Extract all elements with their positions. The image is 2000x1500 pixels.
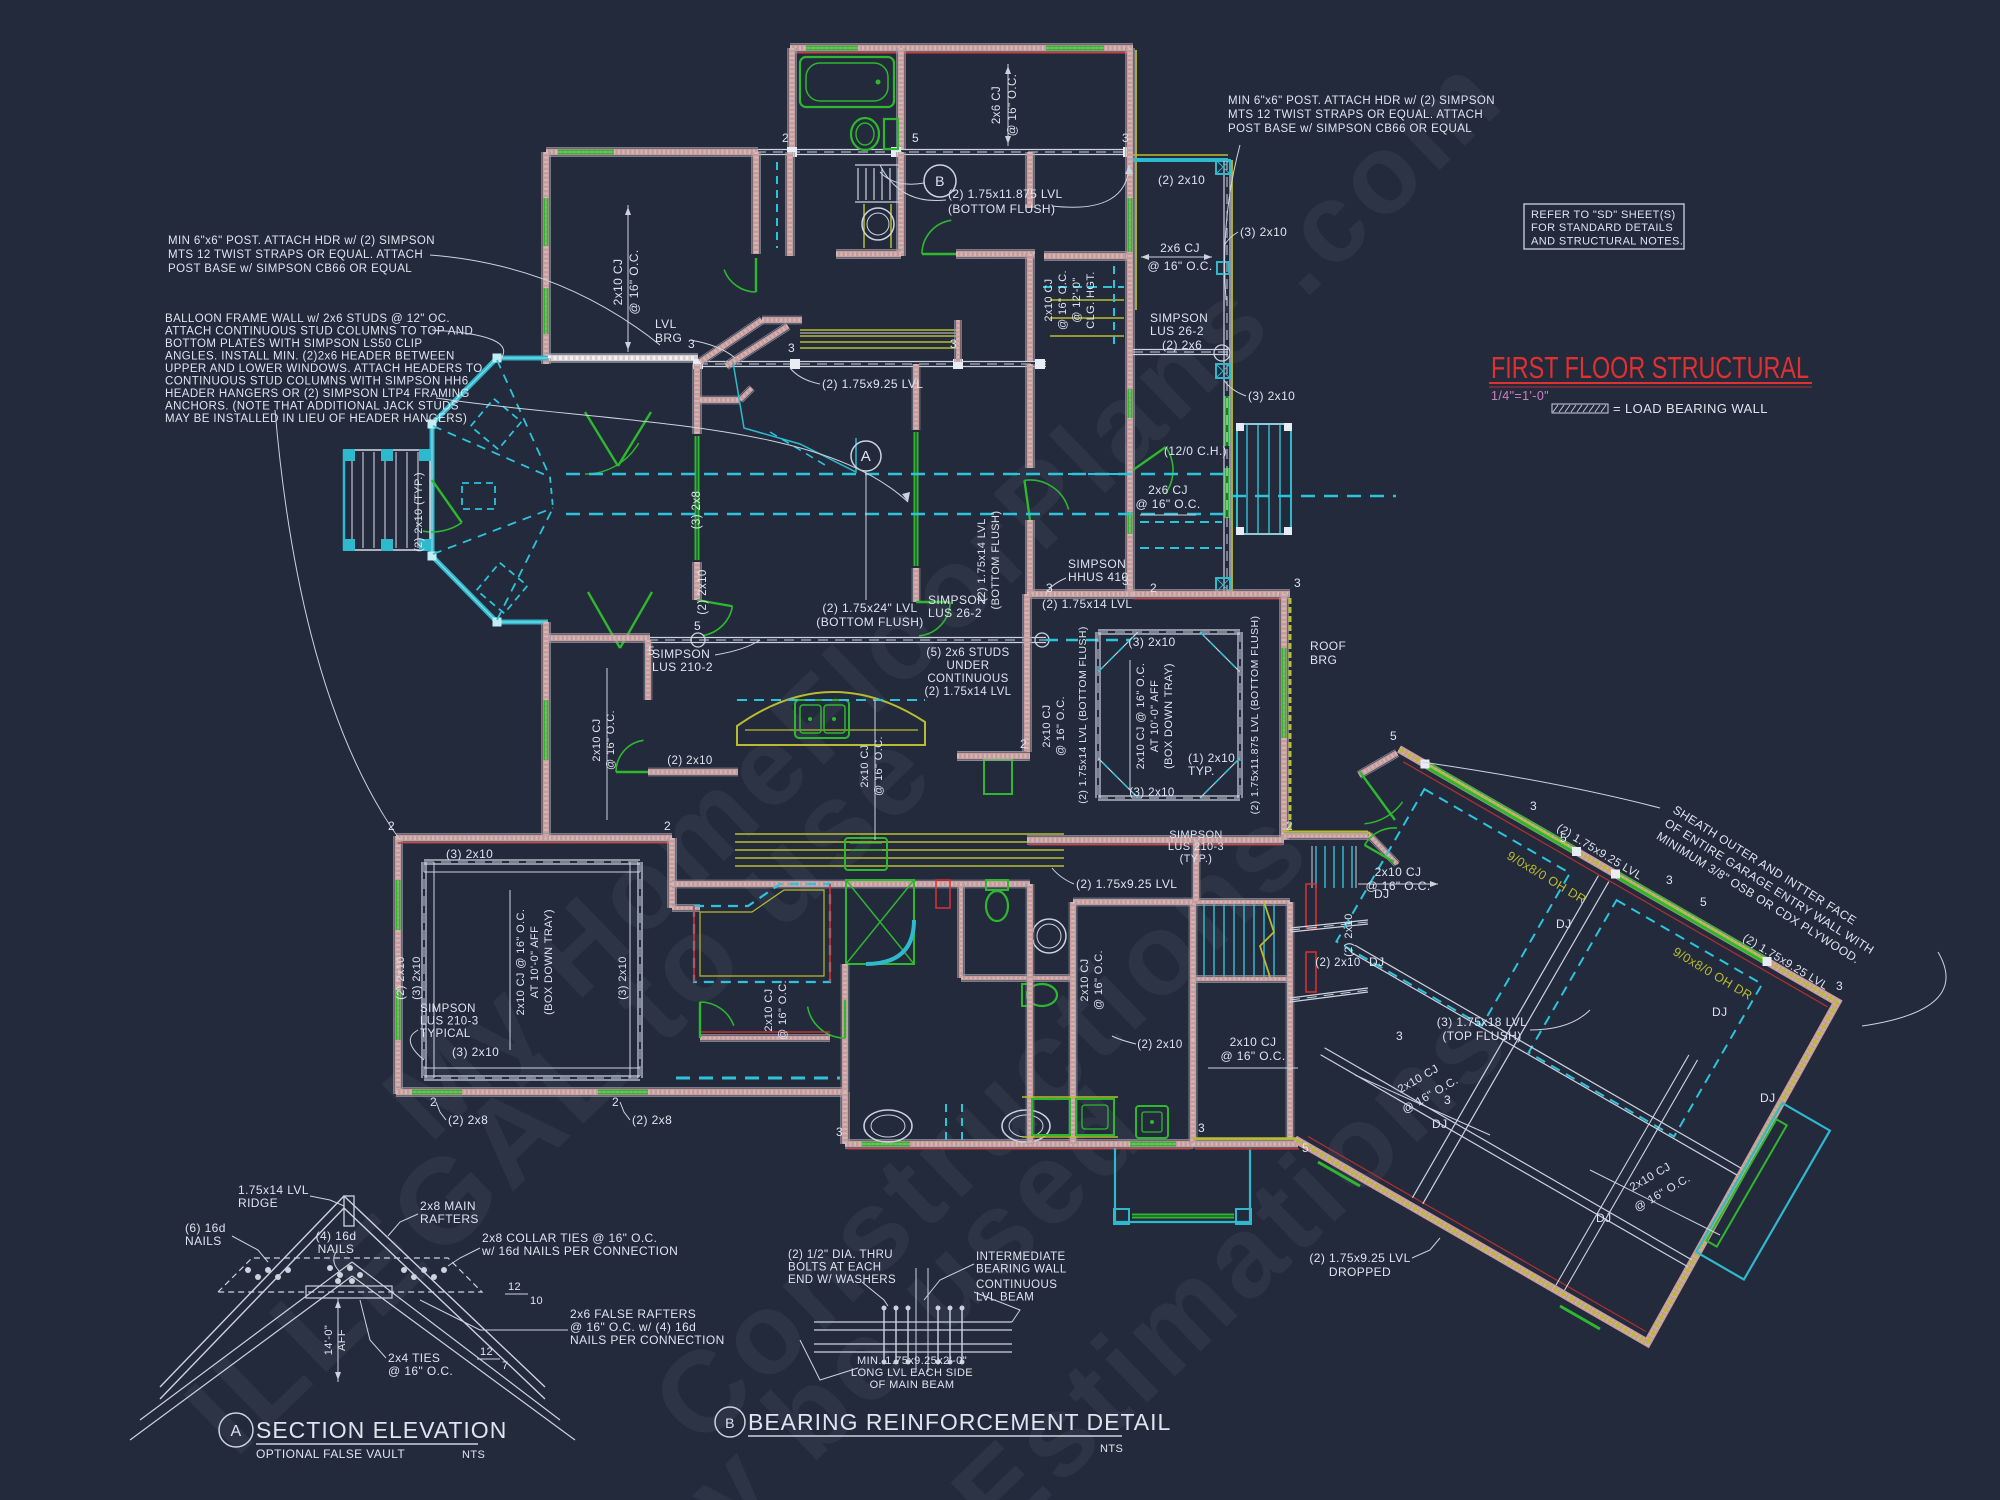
svg-text:DJ: DJ [1374,887,1389,901]
svg-text:BALLOON FRAME WALL w/ 2x6 STUD: BALLOON FRAME WALL w/ 2x6 STUDS @ 12" OC… [165,313,450,325]
svg-text:5: 5 [912,131,919,145]
svg-text:SIMPSON: SIMPSON [1169,829,1223,841]
svg-text:(2) 1/2" DIA. THRU: (2) 1/2" DIA. THRU [788,1249,893,1261]
svg-text:UNDER: UNDER [947,660,990,672]
svg-text:DROPPED: DROPPED [1329,1265,1391,1279]
svg-text:SIMPSON: SIMPSON [420,1003,476,1015]
svg-text:(2) 2x8: (2) 2x8 [632,1113,672,1127]
svg-text:@ 16" O.C.: @ 16" O.C. [627,249,641,314]
svg-text:@ 16" O.C.: @ 16" O.C. [1093,950,1105,1010]
svg-text:B: B [725,1415,735,1431]
svg-text:CONTINUOUS STUD COLUMNS WITH S: CONTINUOUS STUD COLUMNS WITH SIMPSON HH6 [165,376,469,388]
svg-text:CONTINUOUS: CONTINUOUS [976,1279,1057,1291]
svg-text:OPTIONAL FALSE VAULT: OPTIONAL FALSE VAULT [256,1447,405,1461]
svg-text:SECTION ELEVATION: SECTION ELEVATION [256,1417,507,1443]
svg-text:2x10 CJ: 2x10 CJ [1043,278,1055,321]
svg-text:2: 2 [1150,581,1157,595]
svg-text:5: 5 [1560,831,1567,845]
svg-text:DJ: DJ [1760,1091,1775,1105]
svg-text:(2) 2x10: (2) 2x10 [395,956,407,1000]
svg-text:BEARING REINFORCEMENT DETAIL: BEARING REINFORCEMENT DETAIL [748,1409,1171,1435]
svg-text:END W/ WASHERS: END W/ WASHERS [788,1274,896,1286]
svg-text:5: 5 [694,619,701,633]
svg-text:2x4 TIES: 2x4 TIES [388,1351,440,1365]
svg-text:POST BASE w/ SIMPSON CB66 OR E: POST BASE w/ SIMPSON CB66 OR EQUAL [168,263,412,275]
svg-text:DJ: DJ [1432,1117,1447,1131]
svg-text:(3) 2x10: (3) 2x10 [411,956,423,1000]
svg-text:w/ 16d NAILS PER CONNECTION: w/ 16d NAILS PER CONNECTION [481,1244,678,1258]
svg-text:2x8 COLLAR TIES @ 16" O.C.: 2x8 COLLAR TIES @ 16" O.C. [482,1231,657,1245]
svg-text:BOTTOM PLATES WITH SIMPSON LS5: BOTTOM PLATES WITH SIMPSON LS50 CLIP [165,338,422,350]
svg-text:MTS 12 TWIST STRAPS OR EQUAL.: MTS 12 TWIST STRAPS OR EQUAL. ATTACH [168,249,423,261]
svg-text:2: 2 [782,131,789,145]
svg-text:TYP.: TYP. [1188,764,1215,778]
svg-text:CONTINUOUS: CONTINUOUS [927,673,1008,685]
svg-text:(BOTTOM FLUSH): (BOTTOM FLUSH) [948,202,1055,216]
svg-text:SIMPSON: SIMPSON [1068,557,1126,571]
svg-text:LUS 210-2: LUS 210-2 [652,660,713,674]
svg-text:NAILS: NAILS [185,1234,222,1248]
svg-text:DJ: DJ [1556,917,1571,931]
svg-text:3: 3 [836,1125,843,1139]
svg-text:A: A [230,1423,241,1440]
svg-text:(2) 1.75x9.25 LVL: (2) 1.75x9.25 LVL [822,377,923,391]
svg-text:MAY BE INSTALLED IN LIEU OF HE: MAY BE INSTALLED IN LIEU OF HEADER HANGE… [165,413,467,425]
svg-text:(BOTTOM FLUSH): (BOTTOM FLUSH) [990,511,1002,610]
svg-text:2x10 CJ: 2x10 CJ [1230,1035,1277,1049]
svg-text:3: 3 [950,337,957,351]
svg-text:LUS 26-2: LUS 26-2 [928,606,982,620]
svg-text:@ 16" O.C.: @ 16" O.C. [388,1364,453,1378]
svg-text:12: 12 [480,1346,493,1358]
svg-text:2x10 CJ: 2x10 CJ [591,718,603,761]
svg-text:2x10 CJ @ 16" O.C.: 2x10 CJ @ 16" O.C. [1135,663,1147,770]
svg-text:DJ: DJ [1596,1211,1611,1225]
svg-text:BOLTS AT EACH: BOLTS AT EACH [788,1262,881,1274]
svg-text:POST BASE w/ SIMPSON CB66 OR E: POST BASE w/ SIMPSON CB66 OR EQUAL [1228,123,1472,135]
svg-text:MTS 12 TWIST STRAPS OR EQUAL.: MTS 12 TWIST STRAPS OR EQUAL. ATTACH [1228,109,1483,121]
svg-text:(2) 1.75x9.25 LVL: (2) 1.75x9.25 LVL [1309,1251,1410,1265]
svg-text:3: 3 [1122,574,1129,588]
svg-text:AFF: AFF [336,1329,348,1351]
svg-text:(2) 2x10 (TYP.): (2) 2x10 (TYP.) [413,472,425,552]
svg-text:2x10 CJ: 2x10 CJ [859,744,871,787]
svg-text:CLG. HGT.: CLG. HGT. [1085,271,1097,328]
svg-text:(3) 2x10: (3) 2x10 [1129,787,1174,799]
svg-text:ATTACH CONTINUOUS STUD COLUMNS: ATTACH CONTINUOUS STUD COLUMNS TO TOP AN… [165,326,473,338]
svg-text:5: 5 [1302,1141,1309,1155]
svg-text:AND STRUCTURAL NOTES.: AND STRUCTURAL NOTES. [1531,235,1683,247]
svg-text:MIN. 1.75x9.25x2'-0": MIN. 1.75x9.25x2'-0" [857,1355,967,1367]
svg-text:(2) 1.75x14 LVL: (2) 1.75x14 LVL [1042,597,1133,611]
svg-text:@ 12'-0": @ 12'-0" [1071,277,1083,322]
svg-text:MIN 6"x6" POST. ATTACH HDR w/: MIN 6"x6" POST. ATTACH HDR w/ (2) SIMPSO… [168,235,435,247]
svg-text:3: 3 [788,341,795,355]
svg-text:INTERMEDIATE: INTERMEDIATE [976,1251,1066,1263]
svg-text:(2) 2x8: (2) 2x8 [448,1113,488,1127]
svg-text:A: A [861,448,871,465]
svg-text:(2) 1.75x9.25 LVL: (2) 1.75x9.25 LVL [1076,877,1177,891]
svg-text:3: 3 [1836,979,1843,993]
svg-text:RAFTERS: RAFTERS [420,1212,479,1226]
svg-text:(3) 2x10: (3) 2x10 [617,956,629,1000]
svg-text:NTS: NTS [462,1449,485,1461]
svg-text:(TOP FLUSH): (TOP FLUSH) [1442,1029,1521,1043]
svg-text:@ 16" O.C. w/ (4) 16d: @ 16" O.C. w/ (4) 16d [570,1320,696,1334]
svg-text:2x10 CJ: 2x10 CJ [1375,865,1422,879]
svg-text:(2) 1.75x14 LVL: (2) 1.75x14 LVL [976,518,988,601]
svg-text:(BOX DOWN TRAY): (BOX DOWN TRAY) [1163,663,1175,769]
svg-text:(3) 2x10: (3) 2x10 [1128,635,1175,649]
svg-text:1/4"=1'-0": 1/4"=1'-0" [1491,389,1549,403]
svg-text:@ 16" O.C.: @ 16" O.C. [1055,696,1067,756]
svg-text:2x6 FALSE RAFTERS: 2x6 FALSE RAFTERS [570,1307,696,1321]
svg-text:@ 16" O.C.: @ 16" O.C. [777,980,789,1040]
svg-text:2x10 CJ: 2x10 CJ [763,988,775,1031]
svg-text:2x8 MAIN: 2x8 MAIN [420,1199,476,1213]
svg-text:3: 3 [1530,799,1537,813]
svg-text:12: 12 [508,1281,521,1293]
svg-text:AT 10'-0" AFF: AT 10'-0" AFF [529,926,541,999]
svg-text:3: 3 [1122,131,1129,145]
svg-text:3: 3 [1666,873,1673,887]
svg-text:5: 5 [1390,729,1397,743]
svg-text:LVL: LVL [655,317,677,331]
svg-text:2: 2 [612,1095,619,1109]
svg-text:2: 2 [1286,819,1293,833]
svg-text:B: B [935,173,945,189]
svg-text:@ 16" O.C.: @ 16" O.C. [1057,270,1069,330]
svg-text:2x10 CJ: 2x10 CJ [611,259,625,306]
svg-text:DJ: DJ [1369,955,1384,969]
svg-text:LONG LVL EACH SIDE: LONG LVL EACH SIDE [851,1367,973,1379]
svg-text:@ 16" O.C.: @ 16" O.C. [1007,74,1019,137]
svg-text:(6) 16d: (6) 16d [185,1221,226,1235]
svg-text:3: 3 [1396,1029,1403,1043]
svg-text:UPPER AND LOWER WINDOWS. ATTAC: UPPER AND LOWER WINDOWS. ATTACH HEADERS … [165,363,483,375]
svg-text:5: 5 [1700,895,1707,909]
svg-text:3: 3 [1046,581,1053,595]
svg-text:(BOTTOM FLUSH): (BOTTOM FLUSH) [816,615,923,629]
svg-text:2x6 CJ: 2x6 CJ [991,86,1003,124]
svg-text:(2) 1.75x11.875 LVL (BOTTOM FL: (2) 1.75x11.875 LVL (BOTTOM FLUSH) [1249,616,1261,815]
svg-text:(2) 2x10: (2) 2x10 [1137,1039,1182,1051]
svg-text:@ 16" O.C.: @ 16" O.C. [1135,497,1200,511]
svg-text:(2) 1.75x11.875 LVL: (2) 1.75x11.875 LVL [948,187,1063,201]
svg-text:(BOX DOWN TRAY): (BOX DOWN TRAY) [543,909,555,1015]
svg-text:2x6 CJ: 2x6 CJ [1160,241,1200,255]
svg-text:14'-0": 14'-0" [323,1325,335,1355]
svg-text:FOR STANDARD DETAILS: FOR STANDARD DETAILS [1531,222,1673,234]
svg-text:LUS 210-3: LUS 210-3 [1168,841,1224,853]
svg-text:(2) 2x10: (2) 2x10 [1315,957,1360,969]
svg-text:(3) 2x10: (3) 2x10 [1240,225,1287,239]
svg-text:@ 16" O.C.: @ 16" O.C. [1147,259,1212,273]
svg-text:FIRST FLOOR STRUCTURAL: FIRST FLOOR STRUCTURAL [1491,350,1809,385]
svg-text:3: 3 [1294,576,1301,590]
svg-text:TYPICAL: TYPICAL [420,1028,471,1040]
svg-text:(3) 2x10: (3) 2x10 [446,847,493,861]
svg-text:2: 2 [664,819,671,833]
svg-text:REFER TO "SD" SHEET(S): REFER TO "SD" SHEET(S) [1531,209,1676,221]
svg-text:2: 2 [1020,737,1027,751]
svg-text:5: 5 [648,644,655,658]
svg-text:2x6 CJ: 2x6 CJ [1148,483,1188,497]
svg-text:(2) 2x10: (2) 2x10 [1343,913,1355,957]
svg-text:ANGLES. INSTALL MIN. (2)2x6 HE: ANGLES. INSTALL MIN. (2)2x6 HEADER BETWE… [165,351,455,363]
svg-text:2x10 CJ: 2x10 CJ [1079,958,1091,1001]
svg-text:DJ: DJ [1712,1005,1727,1019]
svg-text:2: 2 [430,1095,437,1109]
svg-text:(TYP.): (TYP.) [1180,853,1213,865]
svg-text:7: 7 [502,1360,509,1372]
svg-text:OF MAIN BEAM: OF MAIN BEAM [870,1379,955,1391]
svg-text:LUS 26-2: LUS 26-2 [1150,324,1204,338]
svg-text:BRG: BRG [1310,653,1337,667]
svg-text:MIN 6"x6" POST. ATTACH HDR w/: MIN 6"x6" POST. ATTACH HDR w/ (2) SIMPSO… [1228,95,1495,107]
svg-text:(4) 16d: (4) 16d [316,1229,357,1243]
svg-text:HEADER HANGERS OR (2) SIMPSON: HEADER HANGERS OR (2) SIMPSON LTP4 FRAMI… [165,388,470,400]
svg-text:3: 3 [688,337,695,351]
svg-text:3: 3 [1198,1121,1205,1135]
svg-text:RIDGE: RIDGE [238,1196,278,1210]
svg-text:@ 16" O.C.: @ 16" O.C. [1220,1049,1285,1063]
svg-text:(3) 2x10: (3) 2x10 [452,1045,499,1059]
svg-text:LVL BEAM: LVL BEAM [976,1292,1034,1304]
svg-text:10: 10 [530,1295,543,1307]
svg-text:(3) 2x10: (3) 2x10 [1248,389,1295,403]
svg-text:1.75x14 LVL: 1.75x14 LVL [238,1183,309,1197]
svg-text:ROOF: ROOF [1310,639,1346,653]
svg-text:AT 10'-0" AFF: AT 10'-0" AFF [1149,680,1161,753]
svg-text:(1) 2x10: (1) 2x10 [1188,751,1235,765]
svg-text:(2) 2x10: (2) 2x10 [1158,173,1205,187]
svg-text:NTS: NTS [1100,1443,1123,1455]
svg-text:(2) 1.75x14 LVL (BOTTOM FLUSH): (2) 1.75x14 LVL (BOTTOM FLUSH) [1077,626,1089,804]
svg-text:(2) 1.75x14 LVL: (2) 1.75x14 LVL [925,686,1012,698]
svg-text:HHUS 410: HHUS 410 [1068,570,1129,584]
svg-text:= LOAD BEARING WALL: = LOAD BEARING WALL [1613,401,1768,416]
svg-text:3: 3 [1444,1093,1451,1107]
svg-text:LUS 210-3: LUS 210-3 [420,1016,479,1028]
svg-text:(2) 2x10: (2) 2x10 [667,755,712,767]
svg-text:2: 2 [388,819,395,833]
svg-text:(2) 2x10: (2) 2x10 [697,569,709,614]
svg-text:2x10 CJ @ 16" O.C.: 2x10 CJ @ 16" O.C. [515,909,527,1016]
svg-text:SIMPSON: SIMPSON [652,647,710,661]
svg-text:(5) 2x6 STUDS: (5) 2x6 STUDS [926,647,1009,659]
svg-text:(3) 1.75x18 LVL: (3) 1.75x18 LVL [1437,1015,1528,1029]
svg-text:2x10 CJ: 2x10 CJ [1041,704,1053,747]
svg-text:(2) 1.75x24" LVL: (2) 1.75x24" LVL [822,601,917,615]
svg-text:BEARING WALL: BEARING WALL [976,1264,1067,1276]
svg-text:ANCHORS. (NOTE THAT ADDITIONAL: ANCHORS. (NOTE THAT ADDITIONAL JACK STUD… [165,401,459,413]
svg-text:BRG: BRG [655,331,682,345]
svg-text:NAILS PER CONNECTION: NAILS PER CONNECTION [570,1333,725,1347]
svg-text:(3) 2x8: (3) 2x8 [691,491,703,530]
svg-text:SIMPSON: SIMPSON [1150,311,1208,325]
svg-text:NAILS: NAILS [318,1242,355,1256]
svg-text:(2) 2x6: (2) 2x6 [1162,338,1202,352]
svg-text:(12/0 C.H.): (12/0 C.H.) [1164,444,1227,458]
